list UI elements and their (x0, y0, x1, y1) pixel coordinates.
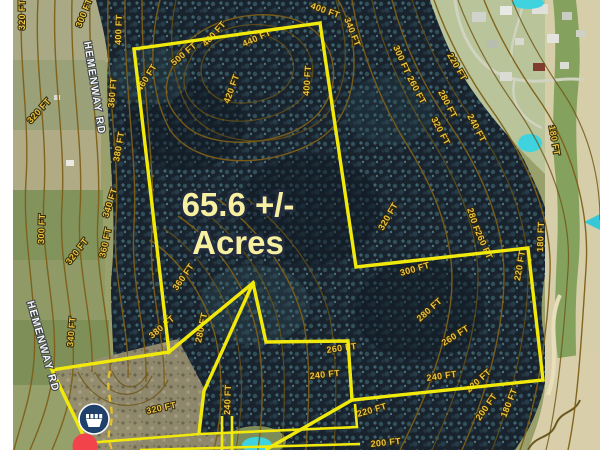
contour-label: 180 FT (535, 221, 546, 252)
acreage-line1: 65.6 +/- (182, 186, 295, 223)
contour-label: 240 FT (222, 384, 233, 415)
contour-label: 400 FT (301, 65, 313, 96)
poi-marker[interactable] (79, 404, 109, 434)
contour-label: 300 FT (36, 213, 47, 244)
page-margin (0, 0, 13, 450)
map-stage[interactable]: 320 FT300 FT400 FT460 FT360 FT320 FT380 … (0, 0, 600, 450)
aerial-map: 320 FT300 FT400 FT460 FT360 FT320 FT380 … (0, 0, 600, 450)
contour-label: 320 FT (17, 0, 27, 30)
acreage-label: 65.6 +/- Acres (182, 186, 295, 261)
contour-label: 400 FT (113, 14, 124, 45)
acreage-line2: Acres (192, 224, 284, 261)
